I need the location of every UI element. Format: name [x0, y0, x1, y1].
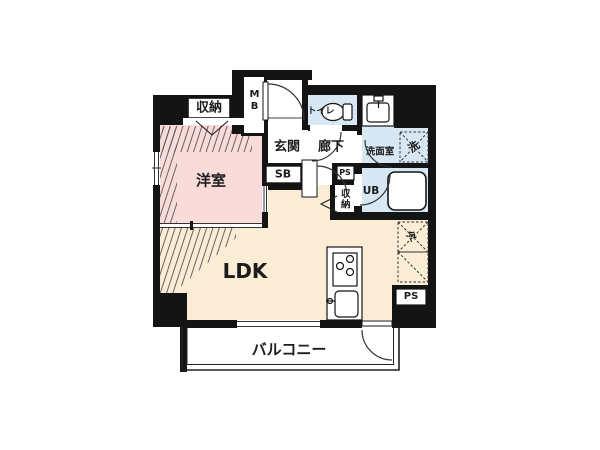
- ldk-door-leaf: [302, 160, 317, 197]
- washroom-label: 洗面室: [366, 147, 395, 157]
- bathtub-icon: [388, 172, 426, 210]
- kitchen-sink-icon: [335, 291, 358, 317]
- balcony-label: バルコニー: [252, 343, 327, 358]
- washstand-icon: [362, 95, 394, 126]
- closet-mid-label: 収納: [339, 189, 349, 210]
- closet-top-label: 収納: [196, 102, 222, 115]
- unit-bath-label: UB: [363, 186, 380, 197]
- window-icon: [237, 320, 320, 328]
- entrance-door-leaf: [263, 82, 268, 120]
- toilet-label: トイレ: [307, 108, 334, 117]
- sliding-door-icon: [262, 186, 268, 212]
- window-icon: [152, 152, 161, 185]
- meter-box-label: MB: [249, 89, 259, 113]
- balcony-door-leaf: [362, 321, 392, 326]
- pipe-space-lower-label: PS: [404, 292, 419, 302]
- shoe-box-label: SB: [275, 169, 291, 180]
- western-room-label: 洋室: [196, 174, 226, 189]
- hallway-label: 廊下: [318, 141, 344, 154]
- kitchen-counter-icon: [326, 247, 362, 320]
- entrance-door-arc: [268, 84, 304, 120]
- floor-plan: 収納 MB 洋室 玄関 SB トイレ 廊下 洗面室 洗 PS 収納 UB LDK…: [0, 0, 600, 450]
- entrance-label: 玄関: [274, 141, 300, 154]
- pipe-space-upper-label: PS: [339, 169, 351, 177]
- ldk-label: LDK: [223, 261, 268, 281]
- floor-plan-graphic: [0, 0, 600, 450]
